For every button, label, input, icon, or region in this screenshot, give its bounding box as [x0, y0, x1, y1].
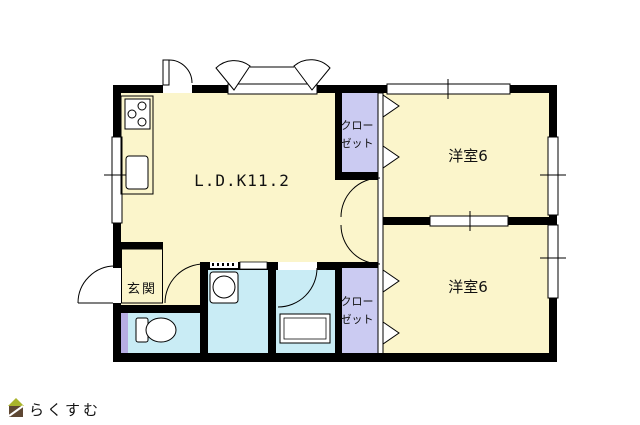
bedroom2-side-window [548, 225, 558, 298]
closet2-floor [342, 268, 378, 353]
bedroom1-side-window [548, 137, 558, 215]
floor-plan-drawing: L.D.K11.2 洋室6 洋室6 クロー ゼット クロー ゼット 玄関 らくす… [0, 0, 640, 425]
kitchen-sink-icon [126, 156, 148, 189]
washstand-counter [240, 262, 267, 269]
site-logo: らくすむ [8, 398, 101, 419]
wall-genkan-top [121, 242, 163, 249]
stove-burner [138, 118, 146, 126]
closet2-label-line1: クロー [341, 295, 374, 308]
wall-right [549, 85, 557, 362]
stove-burner [128, 110, 136, 118]
ldk-top-door-gap [163, 85, 192, 93]
stove-burner [138, 102, 146, 110]
logo-house-roof-icon [8, 398, 24, 406]
ldk-top-window [228, 84, 317, 94]
logo-text: らくすむ [29, 401, 101, 419]
wall-bottom [113, 353, 557, 362]
ldk-top-door-leaf [163, 60, 169, 85]
closet1-label-line2: ゼット [341, 137, 374, 150]
ldk-bedroom-partition-line [378, 93, 383, 354]
genkan-label: 玄関 [127, 282, 157, 297]
closet1-floor [342, 93, 378, 172]
toilet-bowl-icon [146, 318, 176, 342]
bedroom2-label: 洋室6 [448, 278, 488, 296]
bedroom1-label: 洋室6 [448, 147, 488, 165]
closet2-label-line2: ゼット [341, 313, 374, 326]
between-bedrooms-window [430, 216, 508, 226]
entry-door-arc [78, 266, 115, 303]
ldk-top-door-arc [169, 60, 192, 83]
wall-toilet-top [113, 305, 208, 313]
ldk-label: L.D.K11.2 [194, 171, 290, 190]
closet1-label-line1: クロー [341, 119, 374, 132]
toilet-door-panel [121, 313, 128, 353]
floor-plan-page: L.D.K11.2 洋室6 洋室6 クロー ゼット クロー ゼット 玄関 らくす… [0, 0, 640, 425]
wall-washroom-left [200, 262, 208, 353]
wall-washroom-bathroom [268, 262, 276, 353]
entry-door-gap [113, 268, 121, 303]
bathroom-door-gap [278, 262, 317, 270]
